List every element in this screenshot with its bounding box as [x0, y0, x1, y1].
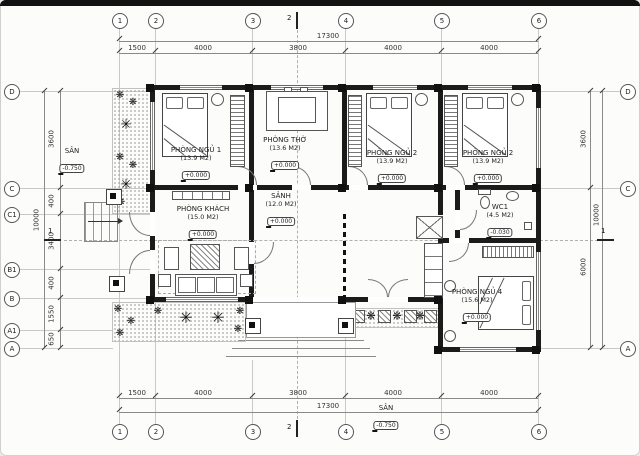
- grid-bubble-row-c-right: C: [620, 181, 636, 197]
- grid-bubble-row-a-right: A: [620, 341, 636, 357]
- plant-icon: ❋: [116, 329, 124, 339]
- room-label-bedroom2a: PHÒNG NGỦ 2(13.9 M2)+0.000: [367, 149, 417, 184]
- window: [536, 108, 541, 168]
- dim: 650: [49, 332, 56, 345]
- level-marker: +0.000: [267, 217, 295, 226]
- door-arc-bedroom4: [449, 243, 469, 262]
- room-label-wc: WC1(4.5 M2)-0.030: [485, 203, 514, 238]
- porch-column: [245, 318, 261, 334]
- grid-bubble-col-4: 4: [338, 13, 354, 29]
- dim-top-total: 17300: [317, 33, 339, 40]
- entry-direction-arrow: [88, 221, 118, 222]
- yard-column: [109, 276, 125, 292]
- room-label-bedroom2b: PHÒNG NGỦ 2(13.9 M2)+0.000: [463, 149, 513, 184]
- flower-box: [404, 310, 417, 323]
- grid-bubble-col-5: 5: [434, 13, 450, 29]
- grid-bubble-col-4b: 4: [338, 424, 354, 440]
- wall-col-5-upper: [438, 85, 443, 190]
- nightstand: [415, 93, 428, 106]
- dim-bottom-total: 17300: [317, 403, 339, 410]
- section-mark-icon: [44, 239, 61, 241]
- window: [166, 297, 238, 302]
- grid-bubble-col-1: 1: [112, 13, 128, 29]
- level-marker: +0.000: [378, 174, 406, 183]
- room-label-bedroom4: PHÒNG NGỦ 4(15.6 M2)+0.000: [452, 288, 502, 323]
- dim: 400: [49, 276, 56, 289]
- floor-drain: [524, 222, 532, 230]
- wall-col-4-upper: [342, 85, 347, 190]
- wall-corridor-stub: [438, 190, 443, 215]
- plant-icon: ✳: [179, 310, 192, 326]
- dim: 3800: [289, 45, 307, 52]
- level-marker: +0.000: [463, 313, 491, 322]
- yard-label-bottom: SÂN-0.750: [373, 404, 398, 431]
- bed-bedroom2a: [366, 93, 412, 157]
- plant-icon: ❋: [154, 307, 162, 317]
- toilet-tank: [478, 189, 491, 195]
- grid-bubble-col-5b: 5: [434, 424, 450, 440]
- plant-icon: ❋: [129, 161, 137, 171]
- level-marker: -0.750: [59, 164, 84, 173]
- plant-icon: ❋: [127, 317, 135, 327]
- wardrobe-bedroom4: [482, 246, 534, 258]
- plant-icon: ❋: [116, 153, 124, 163]
- level-marker: +0.000: [182, 171, 210, 180]
- grid-bubble-col-3: 3: [245, 13, 261, 29]
- door-arc-bedroom2a: [349, 166, 368, 185]
- wash-basin: [506, 191, 519, 201]
- window: [536, 252, 541, 330]
- altar-lamp: [284, 87, 292, 92]
- coffee-table: [190, 244, 220, 270]
- window: [180, 85, 222, 90]
- wardrobe-bedroom2b: [444, 95, 458, 167]
- stair-railing: [343, 214, 346, 298]
- shaft-x-box: [416, 216, 443, 239]
- dim-right-total: 10000: [594, 204, 601, 226]
- door-arc-entry-left: [368, 279, 388, 297]
- plant-icon: ❋: [234, 325, 242, 335]
- grid-bubble-col-6: 6: [531, 13, 547, 29]
- cabinet-counter: [424, 243, 443, 298]
- armchair: [234, 247, 249, 270]
- dim: 4000: [384, 390, 402, 397]
- porch-column: [338, 318, 354, 334]
- dim: 4000: [194, 390, 212, 397]
- entry-steps-left: [84, 202, 118, 242]
- window: [150, 102, 155, 170]
- section-label-top: 2: [287, 15, 291, 22]
- yard-label-left: SÂN-0.750: [59, 147, 84, 174]
- dim: 4000: [480, 45, 498, 52]
- plant-icon: ❋: [392, 311, 401, 322]
- grid-bubble-col-6b: 6: [531, 424, 547, 440]
- side-table: [158, 274, 171, 287]
- level-marker: +0.000: [271, 161, 299, 170]
- dim: 3600: [49, 130, 56, 148]
- level-marker: +0.000: [189, 230, 217, 239]
- room-label-hall: SẢNH(12.0 M2)+0.000: [264, 192, 298, 227]
- room-label-living: PHÒNG KHÁCH(15.0 M2)+0.000: [177, 205, 230, 240]
- section-mark-icon: [296, 12, 298, 29]
- dim: 3600: [581, 130, 588, 148]
- grid-bubble-col-3b: 3: [245, 424, 261, 440]
- floor-plan-canvas: ❋ ❋ ✳ ❋ ❋ ✳ ❋ ❋ ❋ ❋ ❋ ✳ ✳ ❋ ❋ ❋ ❋ ❋: [0, 0, 640, 456]
- window: [468, 85, 512, 90]
- section-label-bottom: 2: [287, 424, 291, 431]
- nightstand: [211, 93, 224, 106]
- dim: 3800: [289, 390, 307, 397]
- door-arc-terrace-1: [129, 212, 150, 236]
- door-arc-entry-right: [388, 279, 408, 297]
- bed-bedroom2b: [462, 93, 508, 157]
- flower-box: [378, 310, 391, 323]
- section-label-right: 1: [601, 228, 605, 235]
- wardrobe-bedroom1: [230, 95, 245, 167]
- window: [271, 85, 323, 90]
- level-marker: -0.750: [373, 421, 398, 430]
- grid-bubble-row-c: C: [4, 181, 20, 197]
- section-mark-icon: [597, 239, 614, 241]
- nightstand: [511, 93, 524, 106]
- room-label-bedroom1: PHÒNG NGỦ 1(13.9 M2)+0.000: [171, 146, 221, 181]
- dim: 400: [49, 194, 56, 207]
- altar-lamp: [300, 87, 308, 92]
- grid-bubble-row-b: B: [4, 291, 20, 307]
- grid-bubble-row-a1: A1: [4, 323, 20, 339]
- dim: 1500: [128, 390, 146, 397]
- door-arc-bedroom1: [238, 166, 257, 185]
- door-arc-terrace-2: [129, 250, 150, 274]
- section-label-left: 1: [48, 228, 52, 235]
- tv-cabinet: [172, 191, 230, 200]
- plant-icon: ❋: [116, 91, 124, 101]
- dim: 4000: [384, 45, 402, 52]
- grid-bubble-row-d-right: D: [620, 84, 636, 100]
- plant-icon: ❋: [236, 307, 244, 317]
- dim: 1500: [128, 45, 146, 52]
- plant-icon: ❋: [366, 311, 375, 322]
- wardrobe-bedroom2a: [348, 95, 362, 167]
- stool: [444, 330, 456, 342]
- plant-icon: ❋: [129, 98, 137, 108]
- yard-column: [106, 189, 122, 205]
- grid-bubble-col-1b: 1: [112, 424, 128, 440]
- dim: 6000: [581, 258, 588, 276]
- dim: 4000: [194, 45, 212, 52]
- dim: 1550: [49, 305, 56, 323]
- room-label-worship: PHÒNG THỜ(13.6 M2)+0.000: [263, 136, 307, 171]
- dim: 4000: [480, 390, 498, 397]
- door-arc-living: [254, 242, 274, 264]
- grid-bubble-row-a: A: [4, 341, 20, 357]
- plant-icon: ✳: [211, 310, 224, 326]
- grid-bubble-col-2b: 2: [148, 424, 164, 440]
- level-marker: -0.030: [487, 228, 512, 237]
- grid-bubble-row-c1: C1: [4, 207, 20, 223]
- altar-inner: [278, 97, 316, 123]
- page-edge-bottom: [0, 0, 640, 6]
- plant-icon: ❋: [114, 305, 122, 315]
- window: [373, 85, 417, 90]
- grid-bubble-col-2: 2: [148, 13, 164, 29]
- plant-icon: ✳: [120, 118, 132, 132]
- armchair: [164, 247, 179, 270]
- grid-bubble-row-d: D: [4, 84, 20, 100]
- section-mark-icon: [296, 420, 298, 437]
- door-arc-wc: [460, 210, 477, 230]
- side-table: [240, 274, 253, 287]
- level-marker: +0.000: [474, 174, 502, 183]
- window: [460, 347, 516, 352]
- grid-bubble-row-b1: B1: [4, 262, 20, 278]
- flower-box: [424, 310, 437, 323]
- dim-left-total: 10000: [34, 209, 41, 231]
